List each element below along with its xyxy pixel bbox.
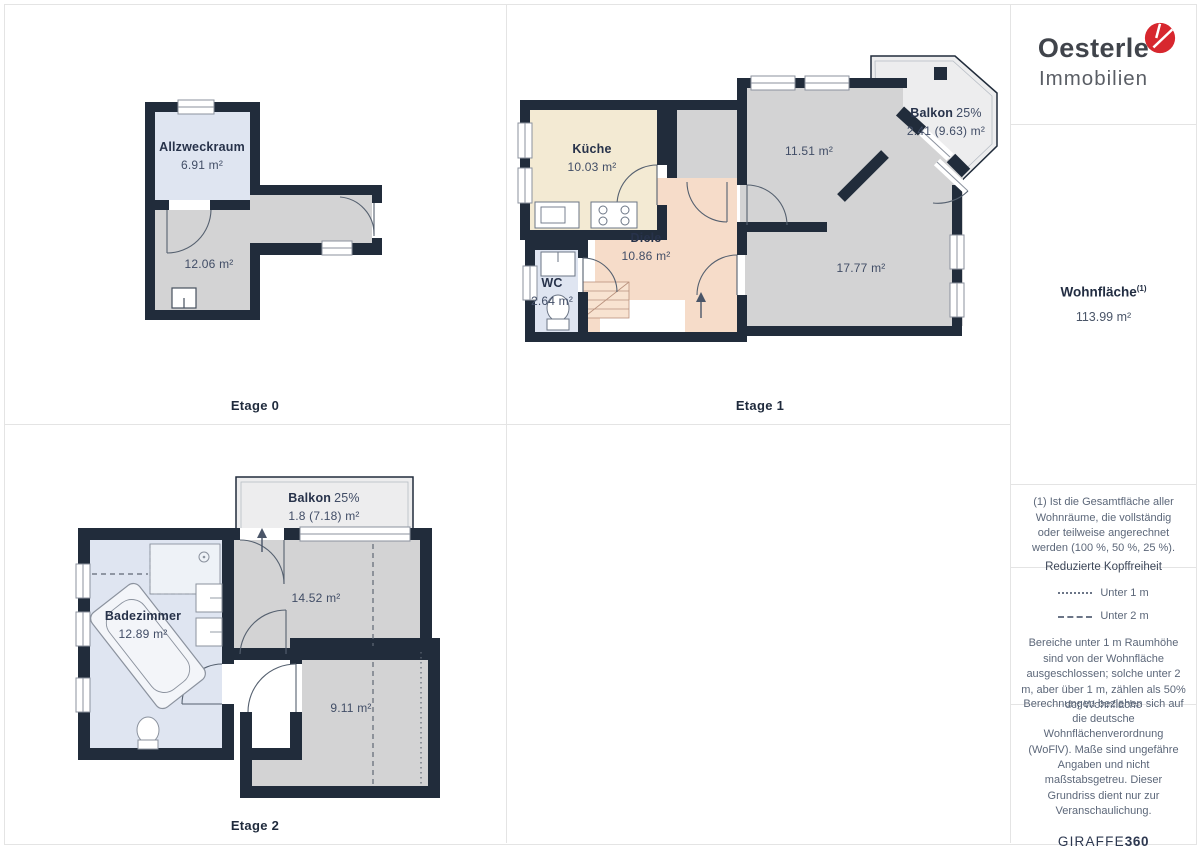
company-logo: Oesterle Immobilien xyxy=(1038,35,1169,94)
caption-etage-1: Etage 1 xyxy=(736,398,784,413)
room-label-allzweckraum: Allzweckraum6.91 m² xyxy=(159,141,245,172)
living-area-title: Wohnfläche(1) xyxy=(1060,283,1146,302)
room-label-badezimmer: Badezimmer12.89 m² xyxy=(105,610,181,641)
room-9-11 xyxy=(252,650,428,786)
windows-etage-2 xyxy=(76,564,90,712)
floorplan-etage-1 xyxy=(505,0,1010,424)
legend-under-1m-label: Unter 1 m xyxy=(1100,586,1148,601)
toilet xyxy=(137,717,159,743)
floorplan-etage-2 xyxy=(0,424,505,848)
room-label-12-06: 12.06 m² xyxy=(185,258,234,271)
caption-etage-2: Etage 2 xyxy=(231,818,279,833)
room-label-11-51: 11.51 m² xyxy=(785,145,833,158)
footnote-marker: (1) xyxy=(1137,284,1147,293)
stairs xyxy=(583,282,629,318)
floorplan-sheet: Allzweckraum6.91 m² 12.06 m² Küche10.03 … xyxy=(0,0,1200,848)
stove xyxy=(591,202,637,228)
legal-section: Berechnungen beziehen sich auf die deuts… xyxy=(1011,704,1196,843)
room-label-wc: WC2.64 m² xyxy=(531,277,573,308)
headroom-title: Reduzierte Kopffreiheit xyxy=(1045,559,1162,575)
legend-under-2m-label: Unter 2 m xyxy=(1100,609,1148,624)
floorplan-etage-0 xyxy=(0,0,505,424)
dashed-line-icon xyxy=(1058,616,1092,618)
room-label-diele: Diele10.86 m² xyxy=(622,232,671,263)
company-subtitle: Immobilien xyxy=(1038,65,1149,94)
caption-etage-0: Etage 0 xyxy=(231,398,279,413)
corridor xyxy=(250,195,372,243)
legend-under-2m: Unter 2 m xyxy=(1058,609,1148,624)
logo-section: Oesterle Immobilien xyxy=(1011,4,1196,124)
floorplan-cell-etage-2 xyxy=(0,424,505,848)
legal-text: Berechnungen beziehen sich auf die deuts… xyxy=(1023,697,1184,820)
dotted-line-icon xyxy=(1058,592,1092,594)
floorplan-cell-etage-1 xyxy=(505,0,1010,424)
vestibule xyxy=(677,110,737,178)
company-name: Oesterle xyxy=(1038,35,1149,62)
sidebar: Oesterle Immobilien Wohnfläche(1) 113.99… xyxy=(1011,4,1196,843)
chimney xyxy=(934,67,947,80)
room-label-9-11: 9.11 m² xyxy=(330,702,371,715)
floorplan-cell-etage-0 xyxy=(0,0,505,424)
living-area-section: Wohnfläche(1) 113.99 m² xyxy=(1011,124,1196,484)
logo-mark-icon xyxy=(1143,21,1177,55)
living-area-value: 113.99 m² xyxy=(1076,309,1131,327)
headroom-section: Reduzierte Kopffreiheit Unter 1 m Unter … xyxy=(1011,567,1196,704)
room-label-kueche: Küche10.03 m² xyxy=(568,143,617,174)
sink-fixture xyxy=(172,288,196,308)
footnote-text: (1) Ist die Gesamtfläche aller Wohnräume… xyxy=(1024,495,1183,557)
legend-under-1m: Unter 1 m xyxy=(1058,586,1148,601)
footnote-section: (1) Ist die Gesamtfläche aller Wohnräume… xyxy=(1011,484,1196,567)
giraffe360-logo: GIRAFFE360 xyxy=(1058,833,1149,848)
room-label-balkon-etage-1: Balkon25% 2.41 (9.63) m² xyxy=(907,107,985,138)
room-label-14-52: 14.52 m² xyxy=(292,592,341,605)
room-label-balkon-etage-2: Balkon25% 1.8 (7.18) m² xyxy=(288,492,360,523)
room-label-17-77: 17.77 m² xyxy=(837,262,886,275)
